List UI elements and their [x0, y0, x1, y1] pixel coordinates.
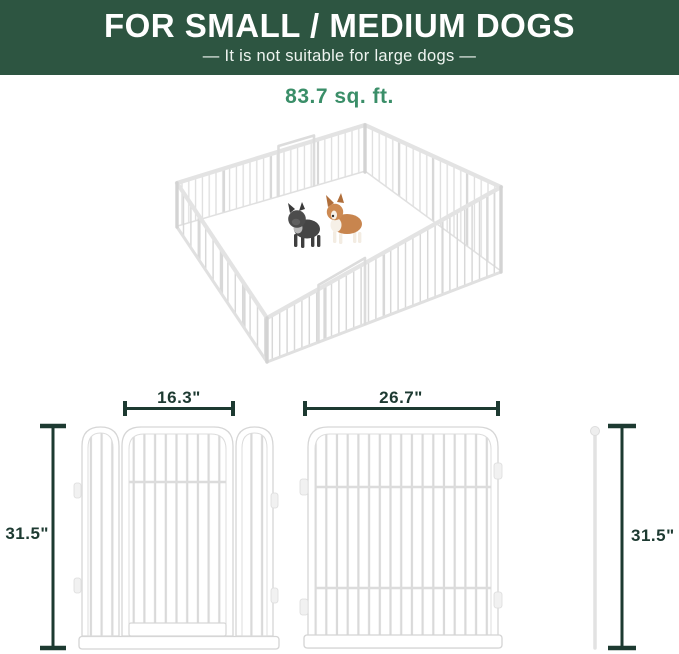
banner-title: FOR SMALL / MEDIUM DOGS	[104, 9, 575, 44]
product-infographic: FOR SMALL / MEDIUM DOGS — It is not suit…	[0, 0, 679, 654]
banner-subtitle: — It is not suitable for large dogs —	[203, 47, 476, 66]
door-width-label: 16.3"	[157, 388, 201, 407]
wide-panel	[300, 427, 502, 648]
dim-width-door: 16.3"	[125, 388, 233, 416]
playpen-illustration	[165, 115, 515, 370]
dim-height-right: 31.5"	[608, 426, 675, 648]
dimension-diagram: 31.5" 16.3"	[0, 385, 679, 654]
height-left-label: 31.5"	[5, 524, 49, 543]
connector-rod	[591, 427, 600, 649]
dim-width-panel: 26.7"	[305, 388, 498, 416]
area-size-label: 83.7 sq. ft.	[0, 85, 679, 109]
height-right-label: 31.5"	[631, 526, 675, 545]
door-panel-group	[74, 427, 279, 649]
panel-width-label: 26.7"	[379, 388, 423, 407]
dim-height-left: 31.5"	[5, 426, 66, 648]
header-banner: FOR SMALL / MEDIUM DOGS — It is not suit…	[0, 0, 679, 75]
door-threshold	[129, 623, 226, 636]
